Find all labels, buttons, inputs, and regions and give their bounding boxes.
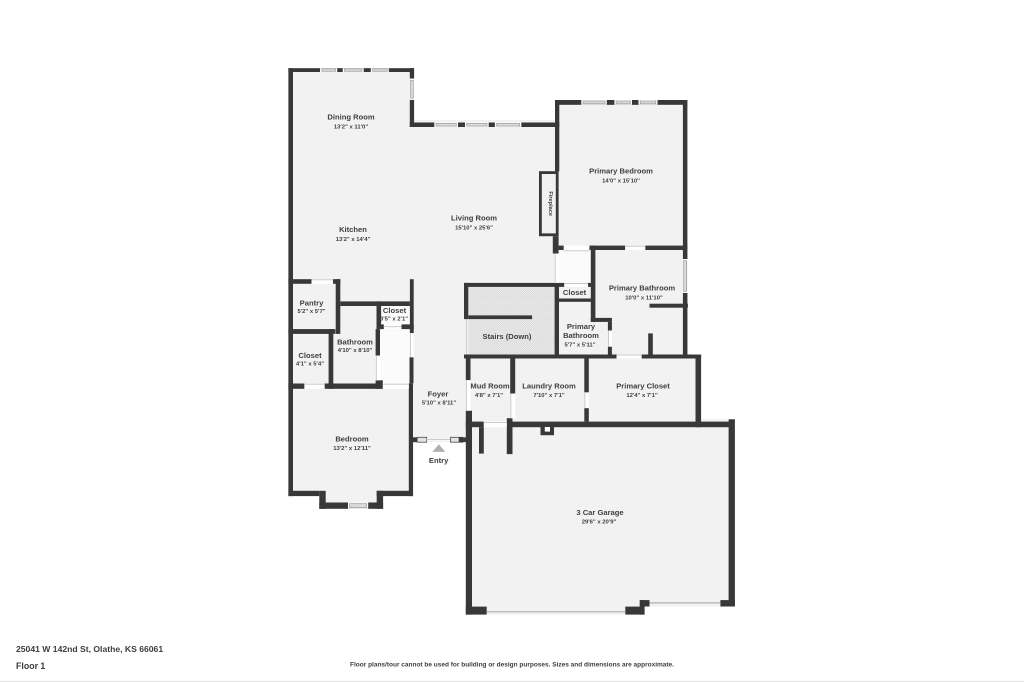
svg-text:Primary Bedroom: Primary Bedroom [589,167,653,176]
svg-text:4'8" x 7'1": 4'8" x 7'1" [475,393,503,399]
svg-text:Pantry: Pantry [300,299,324,308]
svg-text:5'10" x 8'11": 5'10" x 8'11" [422,401,456,407]
svg-text:13'2" x 12'11": 13'2" x 12'11" [333,446,371,452]
svg-text:Bathroom: Bathroom [563,331,599,340]
svg-text:Primary Closet: Primary Closet [616,382,670,391]
svg-text:29'6" x 20'9": 29'6" x 20'9" [582,519,617,525]
svg-text:14'0" x 15'10": 14'0" x 15'10" [602,178,640,184]
svg-text:13'2" x 14'4": 13'2" x 14'4" [336,237,371,243]
svg-text:12'4" x 7'1": 12'4" x 7'1" [626,393,658,399]
svg-text:Mud Room: Mud Room [470,382,509,391]
svg-text:Closet: Closet [298,351,322,360]
svg-text:Stairs (Down): Stairs (Down) [483,332,532,341]
svg-text:Primary: Primary [567,322,596,331]
svg-text:4'10" x 8'10": 4'10" x 8'10" [338,348,373,354]
svg-text:5'7" x 5'11": 5'7" x 5'11" [565,342,596,348]
svg-text:7'10" x 7'1": 7'10" x 7'1" [533,393,565,399]
svg-text:Laundry Room: Laundry Room [522,382,576,391]
svg-text:10'0" x 11'10": 10'0" x 11'10" [625,295,663,301]
svg-text:25041 W 142nd St, Olathe, KS 6: 25041 W 142nd St, Olathe, KS 66061 [16,644,163,654]
svg-text:Fireplace: Fireplace [547,191,553,216]
svg-text:Foyer: Foyer [428,390,449,399]
svg-text:Dining Room: Dining Room [327,113,374,122]
svg-text:Bedroom: Bedroom [335,435,369,444]
svg-text:Floor plans/tour cannot be use: Floor plans/tour cannot be used for buil… [350,662,674,669]
svg-text:15'10" x 25'6": 15'10" x 25'6" [455,225,493,231]
svg-text:Primary Bathroom: Primary Bathroom [609,284,676,293]
svg-text:Floor 1: Floor 1 [16,661,45,671]
svg-text:Closet: Closet [563,288,587,297]
svg-text:Bathroom: Bathroom [337,338,373,347]
svg-text:Entry: Entry [429,456,449,465]
svg-text:5'2" x 5'7": 5'2" x 5'7" [297,309,325,315]
svg-text:13'2" x 11'0": 13'2" x 11'0" [334,125,368,131]
svg-text:Kitchen: Kitchen [339,225,367,234]
svg-text:Closet: Closet [383,306,407,315]
svg-text:Living Room: Living Room [451,214,497,223]
svg-text:4'1" x 5'4": 4'1" x 5'4" [296,362,324,368]
svg-text:3'5" x 2'1": 3'5" x 2'1" [380,317,408,323]
svg-text:3 Car Garage: 3 Car Garage [576,508,623,517]
